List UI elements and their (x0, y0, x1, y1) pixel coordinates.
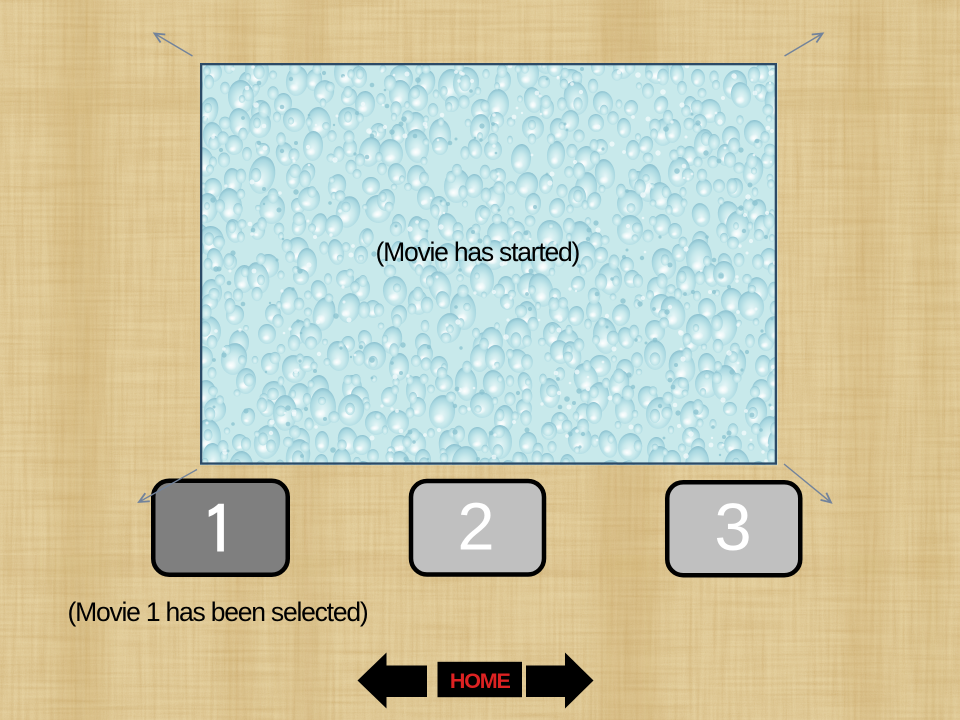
svg-text:(Movie has started): (Movie has started) (376, 237, 580, 267)
svg-text:HOME: HOME (450, 669, 511, 693)
svg-text:(Movie 1 has been selected): (Movie 1 has been selected) (68, 597, 368, 627)
svg-text:2: 2 (457, 490, 494, 565)
svg-text:3: 3 (714, 490, 751, 565)
